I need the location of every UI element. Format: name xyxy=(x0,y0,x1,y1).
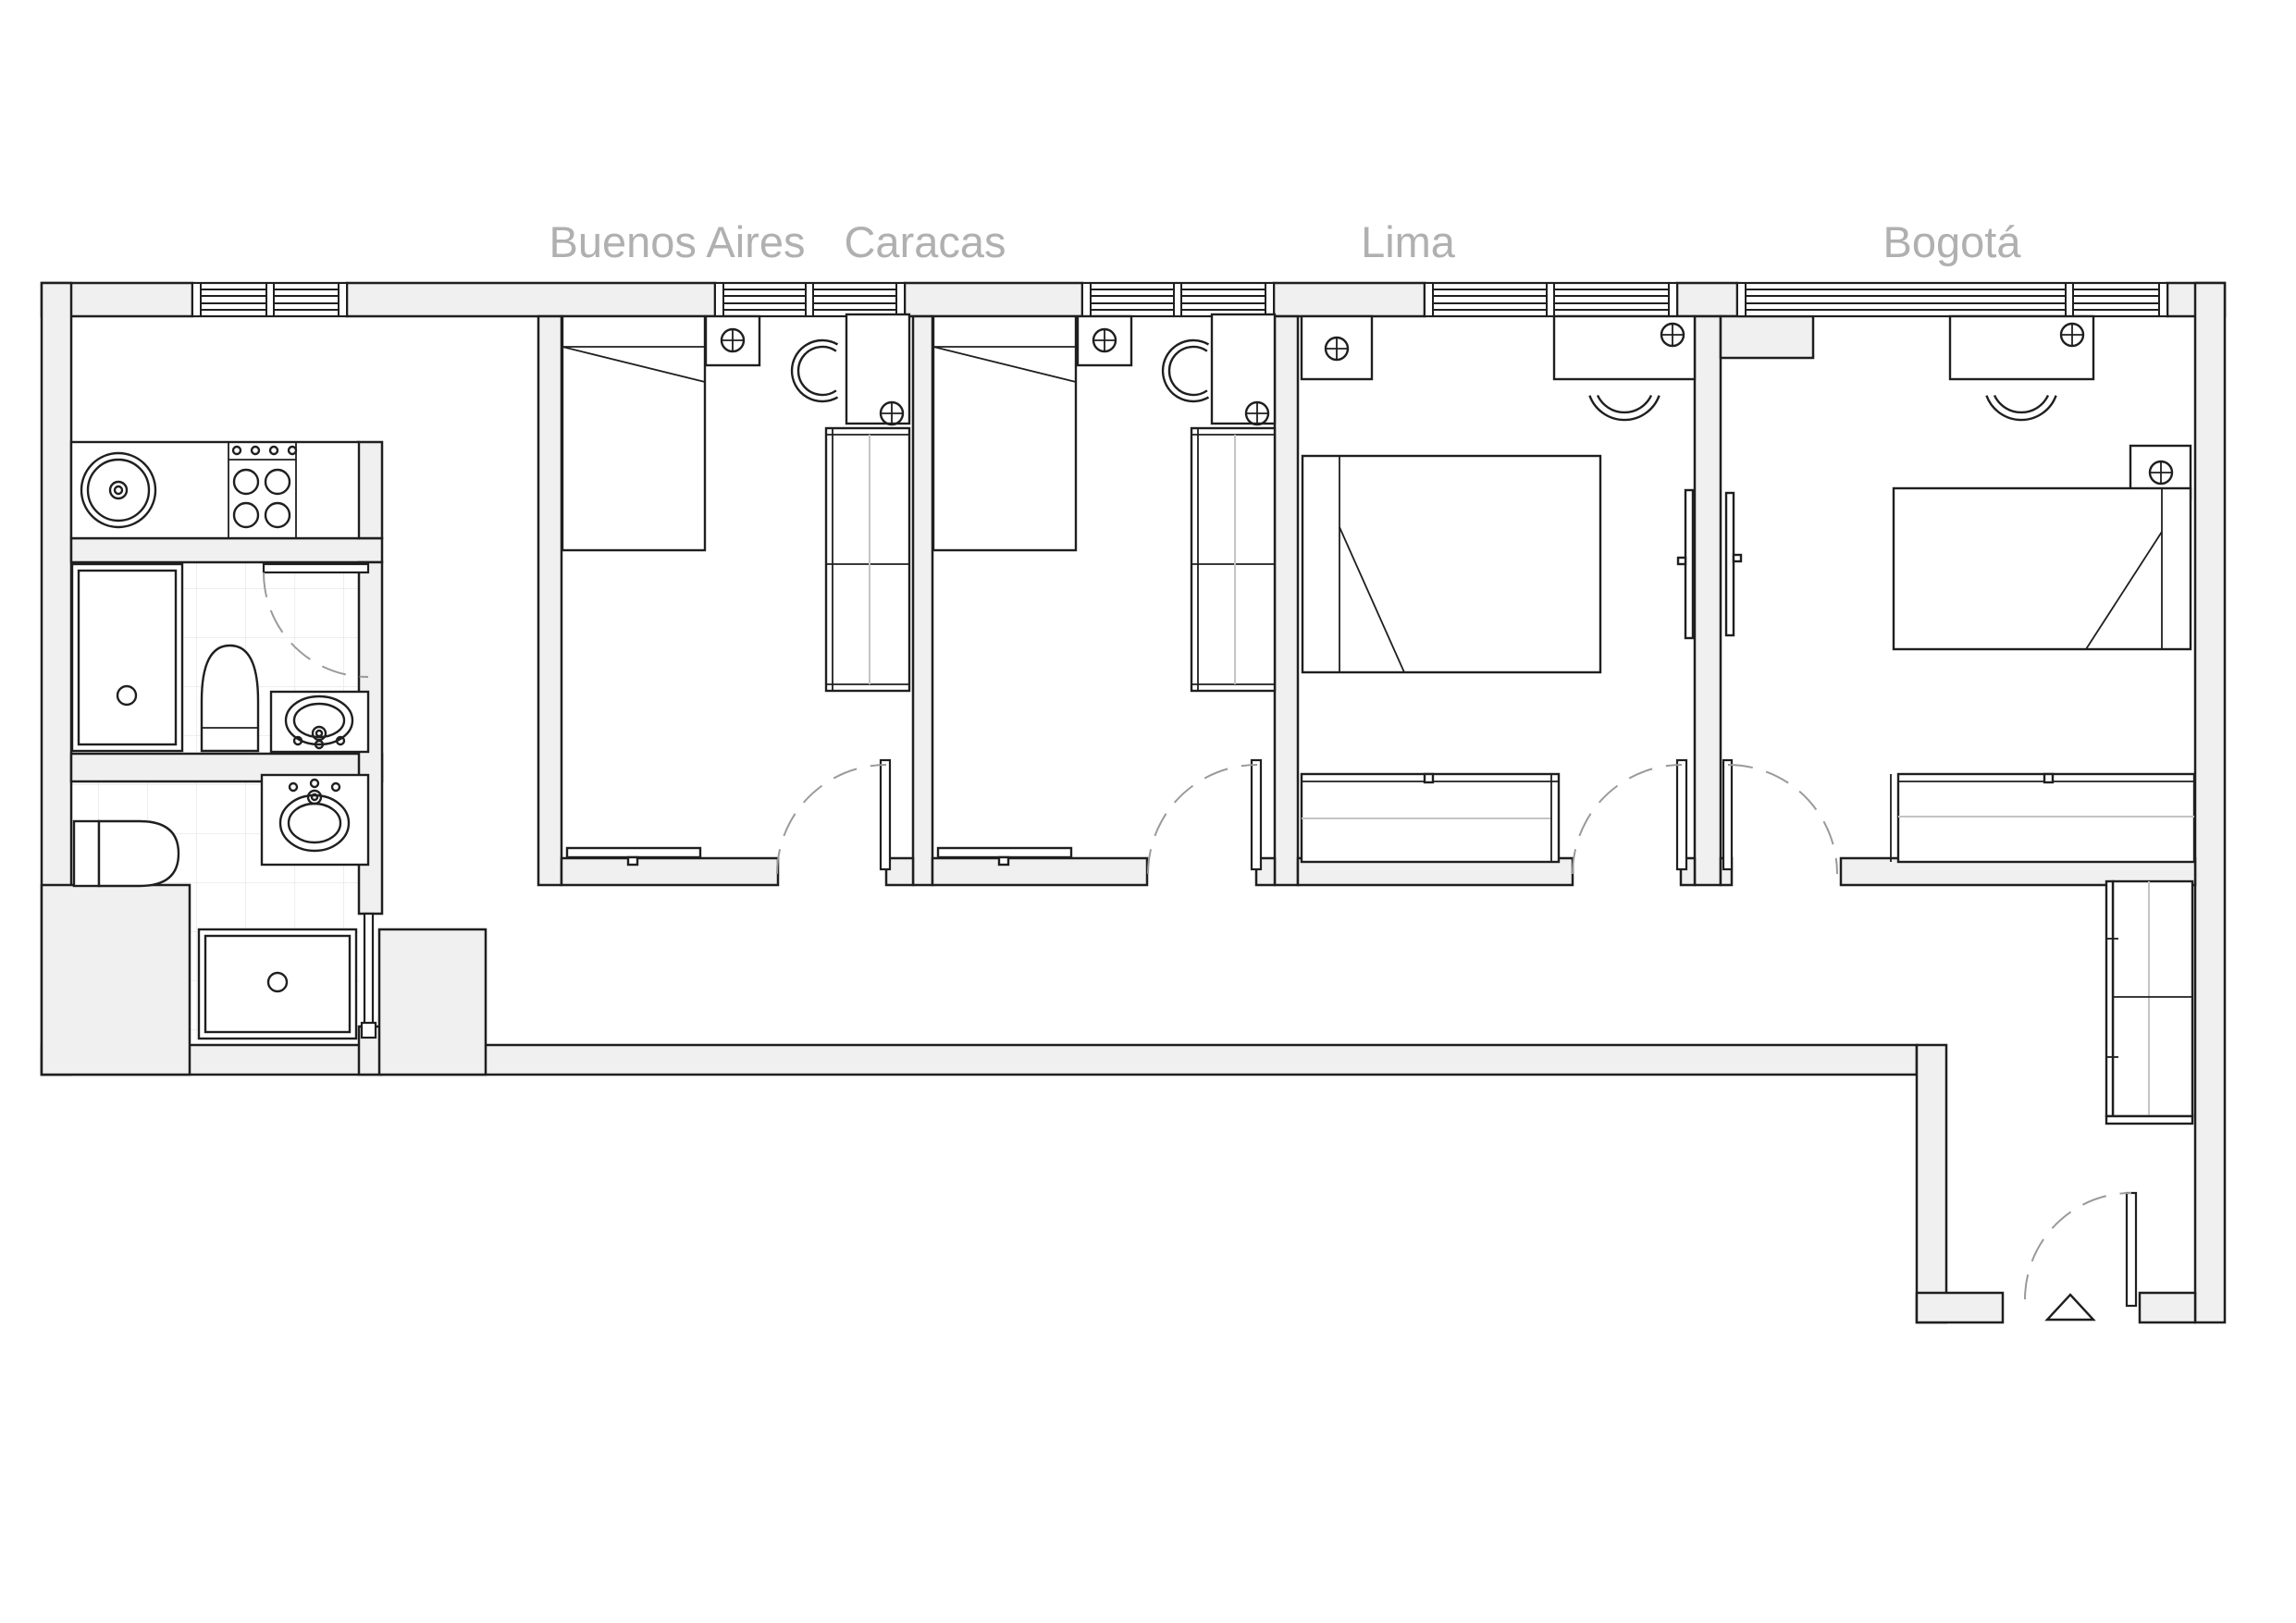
nightstand xyxy=(1302,316,1372,379)
desk xyxy=(1554,316,1695,379)
corridor-floor xyxy=(486,885,1946,1045)
nightstand xyxy=(1078,316,1131,365)
lamp-icon xyxy=(1326,338,1348,360)
floors xyxy=(71,316,2194,1293)
wall-kitchen-bathroom1 xyxy=(71,538,382,562)
floor-plan-svg: Buenos Aires Caracas Lima Bogotá xyxy=(0,0,2296,1623)
room-label-buenos-aires: Buenos Aires xyxy=(549,217,806,266)
floor-plan-page: Buenos Aires Caracas Lima Bogotá xyxy=(0,0,2296,1623)
bogota-wall-alcove xyxy=(1721,316,1813,358)
single-bed xyxy=(562,316,705,550)
room-label-caracas: Caracas xyxy=(844,217,1006,266)
lamp-icon xyxy=(1661,324,1684,346)
bench xyxy=(1302,774,1559,862)
lamp-icon xyxy=(722,329,744,351)
entrance-marker-icon xyxy=(2047,1295,2093,1320)
vestibule-bottom-wall-right xyxy=(2140,1293,2195,1322)
buenosaires-window xyxy=(715,283,905,316)
double-bed xyxy=(1894,488,2191,649)
wardrobe xyxy=(826,428,909,691)
bathroom-2-door xyxy=(362,914,376,1038)
lamp-icon xyxy=(1246,402,1268,424)
washbasin-icon xyxy=(262,775,368,865)
shower-tray-icon xyxy=(199,929,356,1039)
room-label-bogota: Bogotá xyxy=(1883,217,2022,266)
room-label-lima: Lima xyxy=(1361,217,1456,266)
top-wall-segment xyxy=(905,283,1082,316)
top-wall-segment xyxy=(347,283,715,316)
room-labels: Buenos Aires Caracas Lima Bogotá xyxy=(549,217,2022,266)
caracas-bottom-wall xyxy=(932,858,1147,885)
lamp-icon xyxy=(2150,461,2172,484)
caracas-window xyxy=(1082,283,1274,316)
right-exterior-wall xyxy=(2195,283,2225,1322)
shower-tray-icon xyxy=(72,564,182,751)
wall-stub-counter xyxy=(358,442,382,538)
storage-wall-block xyxy=(379,929,486,1075)
wardrobe-shelves xyxy=(2106,881,2192,1124)
wall-caracas-lima xyxy=(1275,316,1298,885)
washbasin-icon xyxy=(271,692,368,752)
desk xyxy=(1950,316,2093,379)
desk xyxy=(1212,314,1275,424)
wall-lima-bogota xyxy=(1695,316,1721,885)
top-wall-segment xyxy=(1274,283,1425,316)
bogota-window xyxy=(1737,283,2167,316)
kitchen xyxy=(71,442,359,538)
desk xyxy=(846,314,909,424)
buenosaires-bottom-wall xyxy=(562,858,778,885)
bottom-left-wall-block xyxy=(42,885,190,1075)
nightstand xyxy=(706,316,759,365)
wardrobe xyxy=(1191,428,1275,691)
single-bed xyxy=(933,316,1076,550)
wall-living-buenosaires xyxy=(538,316,562,885)
toilet-icon xyxy=(74,821,179,886)
lamp-icon xyxy=(881,402,903,424)
bottom-exterior-wall xyxy=(42,1045,1917,1075)
lamp-icon xyxy=(2061,324,2083,346)
top-wall-segment xyxy=(1677,283,1737,316)
lamp-icon xyxy=(1093,329,1116,351)
kitchen-window xyxy=(192,283,347,316)
vestibule-left-wall xyxy=(1917,1045,1946,1322)
toilet-icon xyxy=(202,646,258,751)
lima-window xyxy=(1425,283,1677,316)
double-bed xyxy=(1302,456,1600,672)
bench xyxy=(1891,774,2194,862)
wall-buenosaires-caracas xyxy=(913,316,932,885)
vestibule-bottom-wall-left xyxy=(1917,1293,2003,1322)
